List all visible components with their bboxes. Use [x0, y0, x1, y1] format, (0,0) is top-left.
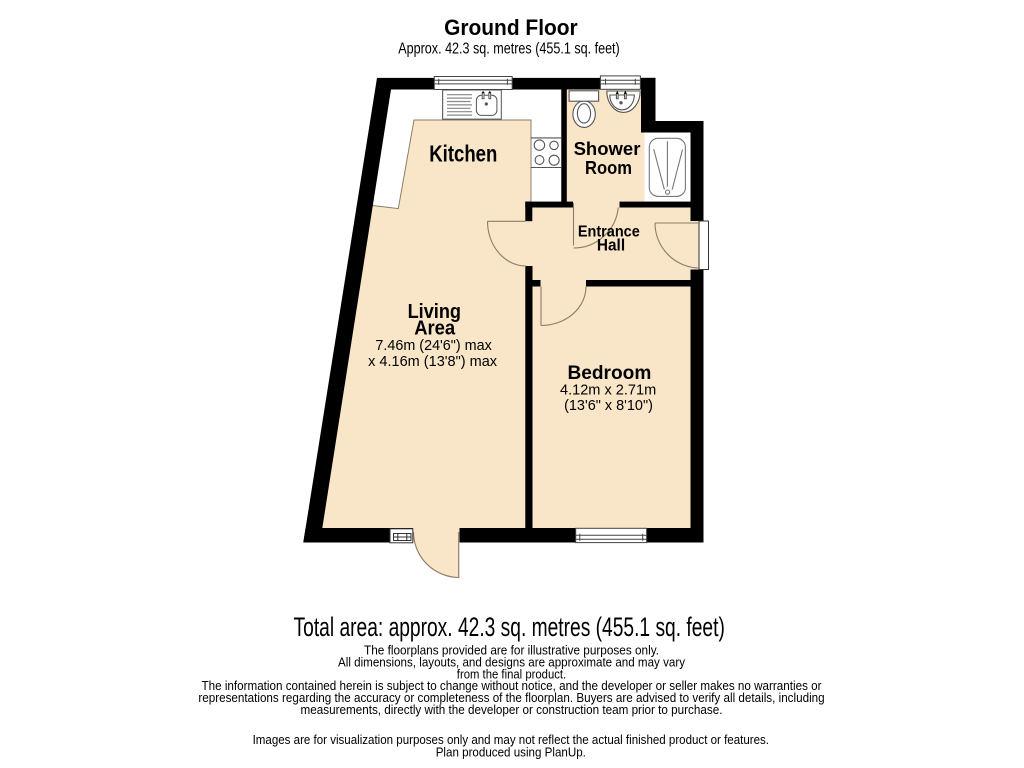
svg-text:Hall: Hall — [597, 237, 625, 255]
svg-text:(13'6" x 8'10"): (13'6" x 8'10") — [564, 397, 653, 414]
svg-text:x 4.16m (13'8") max: x 4.16m (13'8") max — [368, 354, 497, 370]
svg-text:Ground Floor: Ground Floor — [444, 15, 578, 40]
svg-text:Approx. 42.3 sq. metres (455.1: Approx. 42.3 sq. metres (455.1 sq. feet) — [398, 40, 620, 57]
svg-text:7.46m (24'6") max: 7.46m (24'6") max — [375, 338, 491, 354]
svg-text:measurements, directly with th: measurements, directly with the develope… — [301, 702, 723, 717]
svg-text:Plan produced using PlanUp.: Plan produced using PlanUp. — [436, 744, 586, 759]
svg-text:Kitchen: Kitchen — [429, 140, 497, 166]
svg-text:Room: Room — [585, 157, 632, 178]
svg-text:Total area: approx. 42.3 sq. m: Total area: approx. 42.3 sq. metres (455… — [294, 612, 725, 642]
svg-text:Area: Area — [414, 318, 456, 340]
